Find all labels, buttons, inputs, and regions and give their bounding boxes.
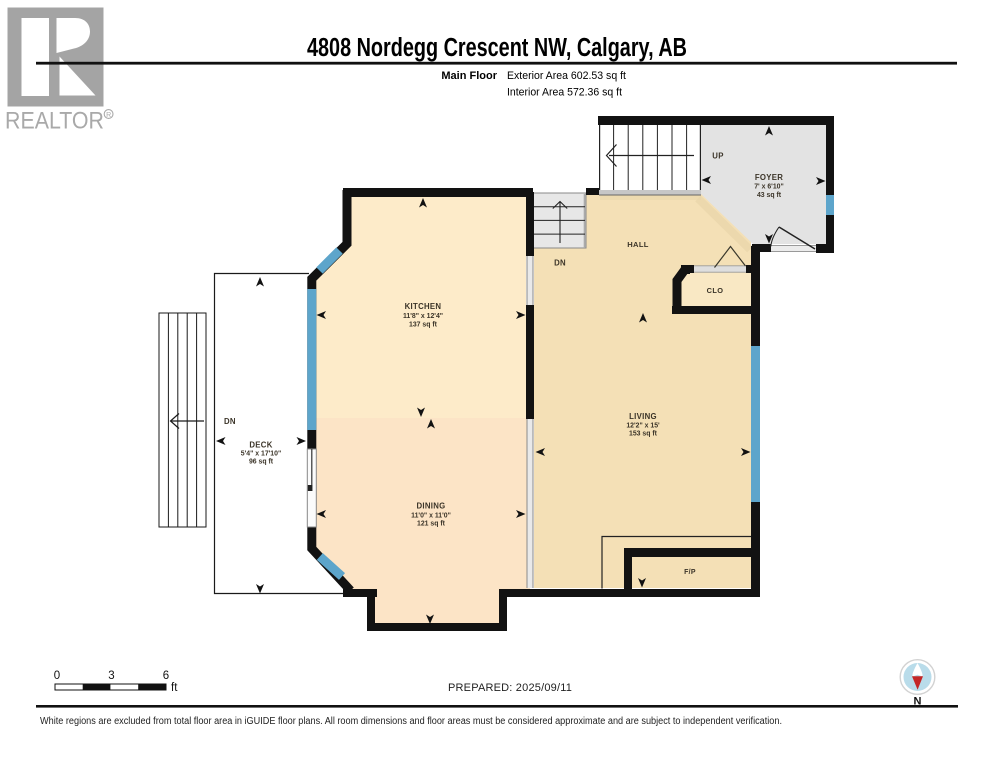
svg-text:153 sq ft: 153 sq ft	[629, 431, 658, 438]
svg-text:DN: DN	[224, 417, 236, 426]
svg-text:43 sq ft: 43 sq ft	[757, 192, 782, 199]
svg-text:11'8" x 12'4": 11'8" x 12'4"	[403, 313, 443, 320]
svg-text:CLO: CLO	[707, 286, 724, 295]
svg-text:KITCHEN: KITCHEN	[405, 302, 442, 311]
svg-text:Exterior Area 602.53 sq ft: Exterior Area 602.53 sq ft	[507, 70, 626, 82]
svg-text:121 sq ft: 121 sq ft	[417, 521, 446, 528]
svg-text:6: 6	[163, 670, 169, 682]
svg-text:UP: UP	[712, 152, 723, 161]
svg-text:PREPARED: 2025/09/11: PREPARED: 2025/09/11	[448, 682, 572, 694]
svg-text:DINING: DINING	[416, 502, 445, 511]
svg-text:ft: ft	[171, 682, 178, 694]
svg-text:FOYER: FOYER	[755, 173, 783, 182]
svg-text:REALTOR: REALTOR	[5, 108, 104, 135]
svg-text:0: 0	[54, 670, 60, 682]
svg-text:R: R	[106, 112, 111, 119]
svg-text:137 sq ft: 137 sq ft	[409, 322, 438, 329]
svg-text:HALL: HALL	[627, 240, 649, 249]
svg-text:3: 3	[108, 670, 114, 682]
svg-text:96 sq ft: 96 sq ft	[249, 459, 274, 466]
svg-text:12'2" x 15': 12'2" x 15'	[626, 423, 660, 430]
svg-text:Interior Area 572.36 sq ft: Interior Area 572.36 sq ft	[507, 87, 622, 99]
svg-text:F/P: F/P	[684, 569, 696, 576]
svg-text:Main Floor: Main Floor	[441, 70, 497, 82]
svg-text:DECK: DECK	[249, 441, 272, 450]
svg-text:White regions are excluded fro: White regions are excluded from total fl…	[40, 716, 782, 727]
svg-text:4808 Nordegg Crescent NW, Calg: 4808 Nordegg Crescent NW, Calgary, AB	[307, 34, 687, 62]
svg-text:DN: DN	[554, 259, 566, 268]
svg-text:7' x 6'10": 7' x 6'10"	[754, 184, 784, 191]
svg-text:5'4" x 17'10": 5'4" x 17'10"	[241, 451, 281, 458]
svg-text:N: N	[914, 696, 922, 708]
svg-text:LIVING: LIVING	[629, 412, 657, 421]
svg-text:11'0" x 11'0": 11'0" x 11'0"	[411, 513, 451, 520]
